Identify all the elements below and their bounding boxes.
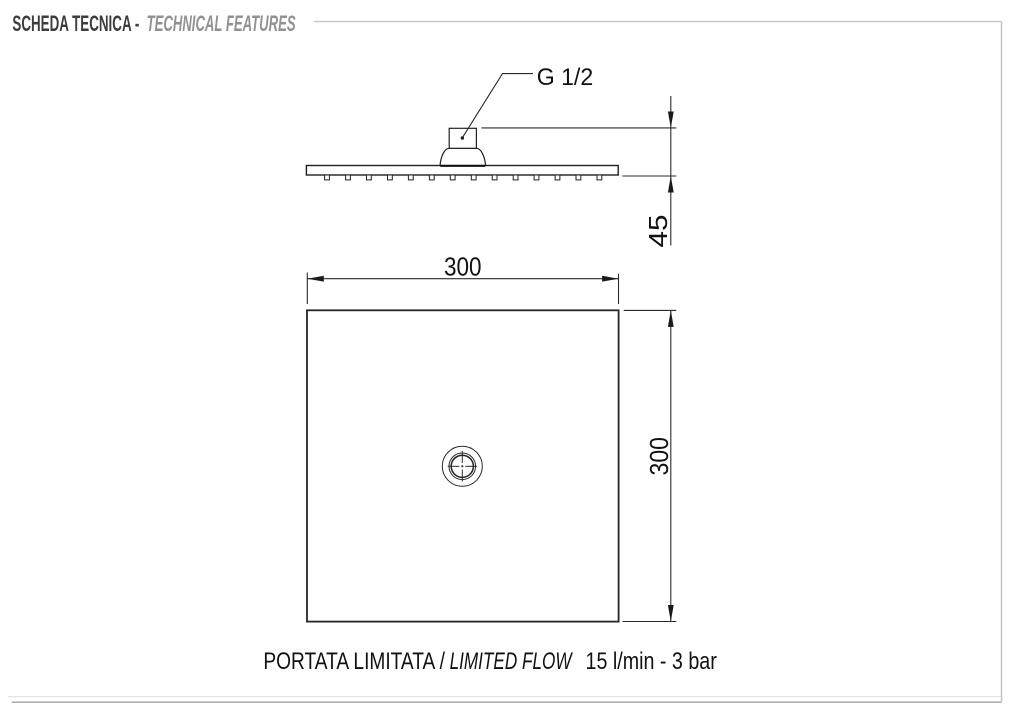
svg-text:LIMITED FLOW: LIMITED FLOW (450, 648, 573, 675)
svg-text:45: 45 (643, 215, 673, 248)
svg-text:TECHNICAL FEATURES: TECHNICAL FEATURES (147, 11, 296, 36)
svg-text:SCHEDA TECNICA -: SCHEDA TECNICA - (12, 11, 139, 36)
svg-text:15 l/min - 3 bar: 15 l/min - 3 bar (586, 648, 717, 675)
svg-text:PORTATA LIMITATA /: PORTATA LIMITATA / (263, 648, 445, 675)
svg-text:300: 300 (444, 252, 482, 282)
svg-text:G 1/2: G 1/2 (537, 64, 594, 91)
svg-text:300: 300 (644, 437, 674, 476)
